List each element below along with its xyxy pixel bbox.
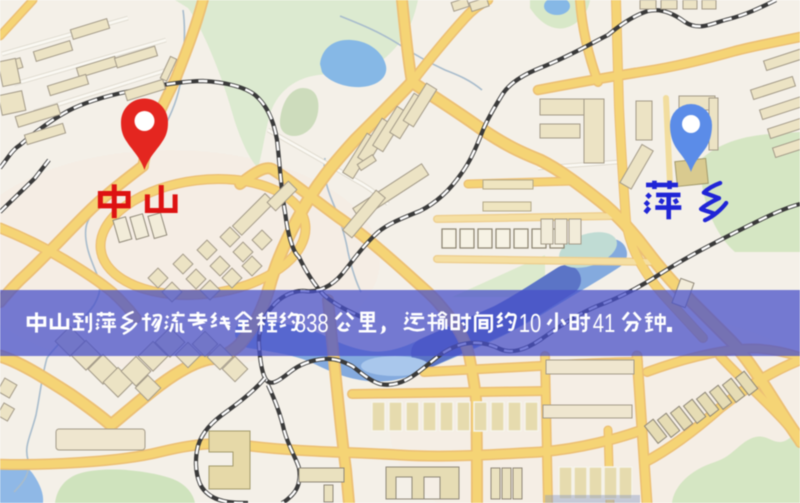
svg-text:838: 838 — [295, 309, 329, 338]
svg-text:41: 41 — [593, 309, 616, 338]
svg-text:10: 10 — [519, 309, 542, 338]
